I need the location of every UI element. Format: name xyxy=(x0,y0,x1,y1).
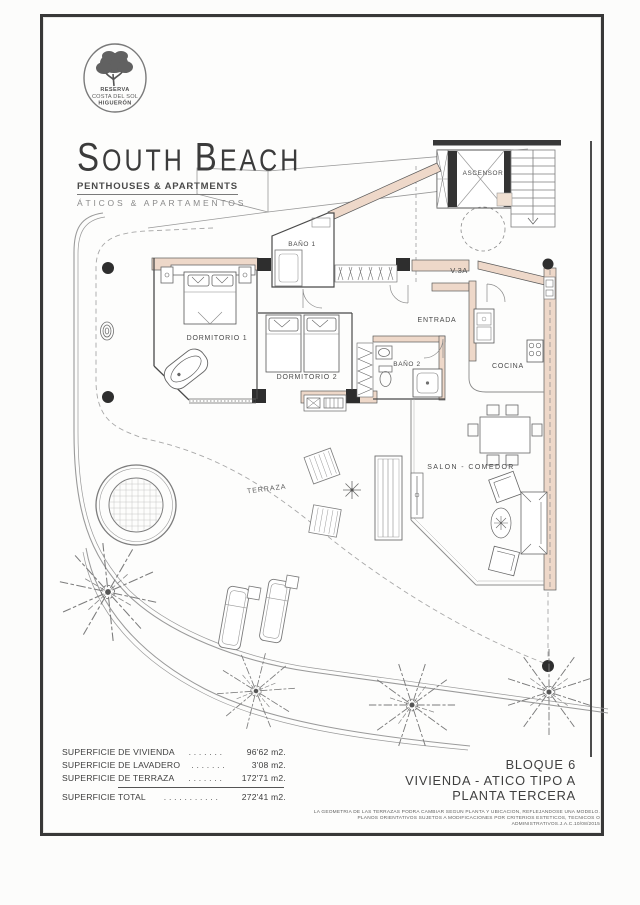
table-row: SUPERFICIE DE LAVADERO . . . . . . . 3'0… xyxy=(62,760,286,773)
sun-lounger-2 xyxy=(259,579,291,644)
kitchen: COCINA xyxy=(469,277,555,392)
palm-tree-2 xyxy=(203,639,308,743)
total-divider xyxy=(118,787,284,788)
table-row: SUPERFICIE DE VIVIENDA . . . . . . . 96'… xyxy=(62,747,286,760)
tree-icon xyxy=(96,51,133,86)
stove xyxy=(527,340,543,362)
disclaimer-line2: PLANOS ORIENTATIVOS SUJETOS A MODIFICACI… xyxy=(290,816,600,828)
terrace-table-1 xyxy=(304,448,340,484)
landing-dashed-circle xyxy=(461,207,505,251)
sink-unit xyxy=(544,277,555,299)
brand-rest-1: OUTH xyxy=(102,144,185,178)
logo-line2: COSTA DEL SOL xyxy=(92,94,138,100)
sofa xyxy=(521,492,547,554)
title-block-line2: VIVIENDA - ATICO TIPO A xyxy=(320,773,576,789)
room-label-v3a: V.3A xyxy=(450,266,468,275)
area-label: SUPERFICIE TOTAL xyxy=(62,792,146,802)
terrace-plant xyxy=(343,481,361,499)
plan-sheet-page: RESERVA COSTA DEL SOL HIGUERÓN xyxy=(0,0,640,905)
room-label-entrada: ENTRADA xyxy=(417,317,456,324)
armchair-2 xyxy=(488,546,519,576)
bathroom2: BAÑO 2 xyxy=(357,339,445,399)
rug-plant xyxy=(491,508,511,538)
bathroom1: BAÑO 1 xyxy=(272,213,334,308)
title-block: BLOQUE 6 VIVIENDA - ATICO TIPO A PLANTA … xyxy=(320,757,576,804)
room-label-salon: SALON - COMEDOR xyxy=(427,464,515,471)
area-value: 3'08 m2. xyxy=(236,760,286,770)
area-label: SUPERFICIE DE VIVIENDA xyxy=(62,747,175,757)
closet-strip xyxy=(357,343,373,397)
terrace-table-2 xyxy=(309,505,341,537)
leader-dots: . . . . . . . xyxy=(174,773,236,783)
garden-ornament xyxy=(101,322,114,340)
tv-bench xyxy=(411,473,423,518)
area-label: SUPERFICIE DE TERRAZA xyxy=(62,773,174,783)
disclaimer-text: LA GEOMETRIA DE LAS TERRAZAS PODRA CAMBI… xyxy=(290,810,600,829)
brand-rest-2: EACH xyxy=(220,144,301,178)
area-label: SUPERFICIE DE LAVADERO xyxy=(62,760,180,770)
area-value: 272'41 m2. xyxy=(236,792,286,802)
armchair-1 xyxy=(489,471,522,502)
table-row: SUPERFICIE DE TERRAZA . . . . . . . 172'… xyxy=(62,773,286,786)
area-value: 96'62 m2. xyxy=(236,747,286,757)
brand-subtitle-en: PENTHOUSES & APARTMENTS xyxy=(77,181,238,195)
fridge xyxy=(474,309,494,343)
palm-tree-3 xyxy=(369,664,455,746)
palm-tree-4 xyxy=(495,640,602,744)
room-label-dormitorio1: DORMITORIO 1 xyxy=(187,335,248,342)
room-label-bano2: BAÑO 2 xyxy=(393,359,420,368)
logo-line3: HIGUERÓN xyxy=(98,99,131,107)
grill-shelf xyxy=(375,456,402,540)
washer xyxy=(304,395,346,411)
sun-lounger-1 xyxy=(218,586,250,651)
leader-dots: . . . . . . . xyxy=(175,747,236,757)
side-table-2 xyxy=(285,575,299,589)
area-value: 172'71 m2. xyxy=(236,773,286,783)
room-label-dormitorio2: DORMITORIO 2 xyxy=(277,374,338,381)
leader-dots: . . . . . . . . . . . xyxy=(146,792,236,802)
title-block-line3: PLANTA TERCERA xyxy=(320,788,576,804)
table-row-total: SUPERFICIE TOTAL . . . . . . . . . . . 2… xyxy=(62,792,286,805)
side-table-1 xyxy=(247,586,261,600)
title-block-line1: BLOQUE 6 xyxy=(320,757,576,773)
bedroom2: DORMITORIO 2 xyxy=(258,313,352,411)
double-bed xyxy=(161,265,255,324)
reserva-logo: RESERVA COSTA DEL SOL HIGUERÓN xyxy=(84,44,146,112)
brand-block: SOUTH BEACH PENTHOUSES & APARTMENTS ÁTIC… xyxy=(77,134,267,208)
room-label-terraza: TERRAZA xyxy=(247,484,287,496)
surface-areas-table: SUPERFICIE DE VIVIENDA . . . . . . . 96'… xyxy=(62,747,286,805)
brand-wordmark: SOUTH BEACH xyxy=(77,134,267,180)
brand-subtitle-es: ÁTICOS & APARTAMENTOS xyxy=(77,198,267,208)
brand-initial-2: B xyxy=(195,134,220,179)
brand-initial-1: S xyxy=(77,134,102,179)
dining-table xyxy=(468,405,542,465)
jacuzzi xyxy=(96,465,176,545)
bathtub xyxy=(160,345,212,394)
room-label-cocina: COCINA xyxy=(492,363,524,370)
palm-tree-1 xyxy=(50,536,166,648)
bedroom1: DORMITORIO 1 xyxy=(154,258,257,403)
room-label-ascensor: ASCENSOR xyxy=(463,170,504,177)
room-label-bano1: BAÑO 1 xyxy=(288,239,315,248)
living-dining: SALON - COMEDOR xyxy=(411,399,547,585)
logo-line1: RESERVA xyxy=(100,87,129,93)
wardrobe-hangers xyxy=(335,265,397,282)
leader-dots: . . . . . . . xyxy=(180,760,236,770)
single-beds xyxy=(266,315,339,372)
